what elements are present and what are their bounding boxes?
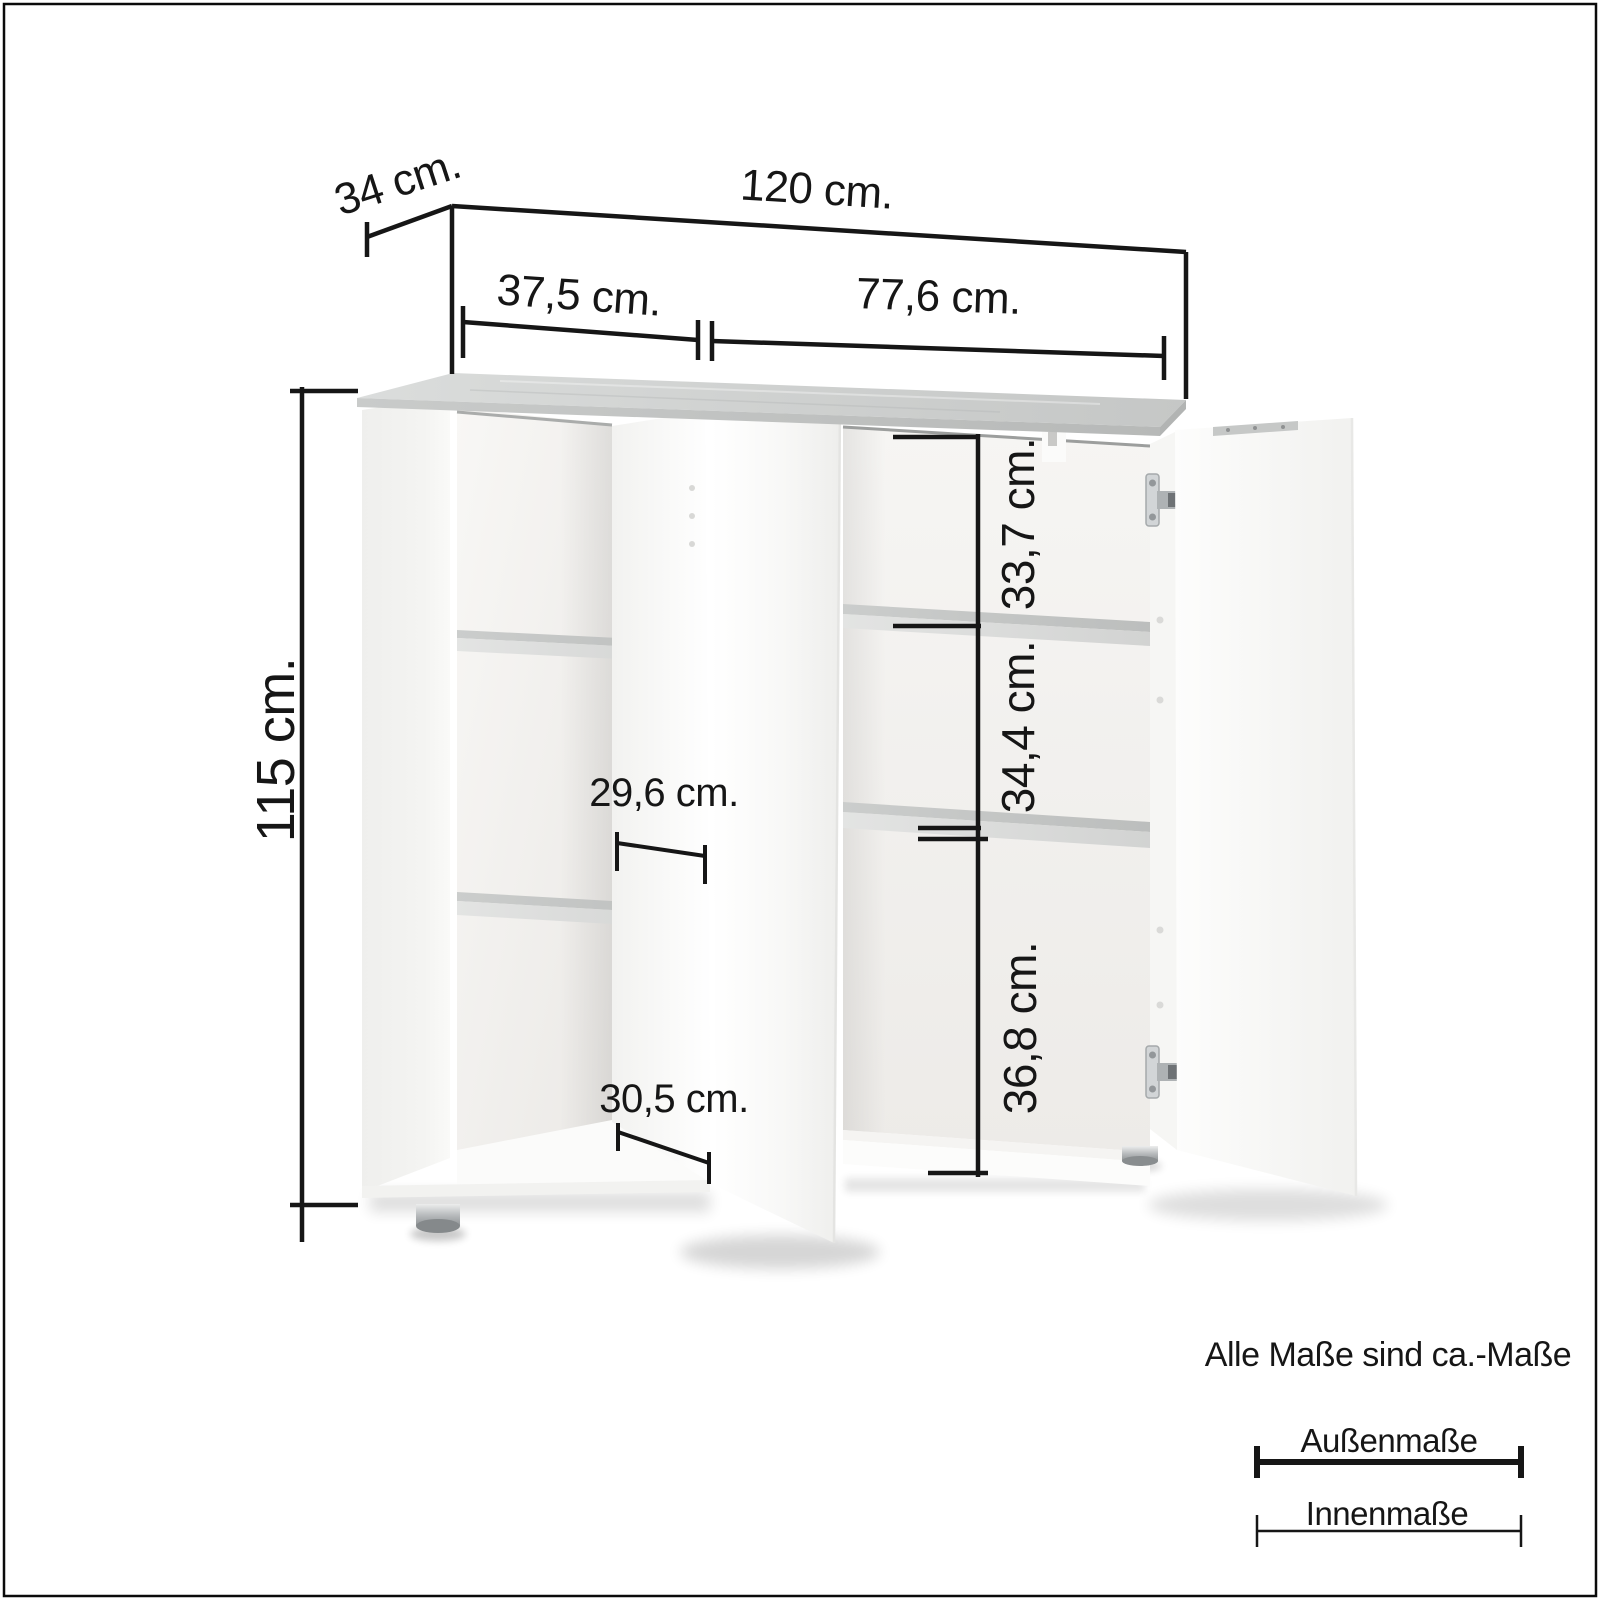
hinge-screw (1149, 480, 1156, 487)
label-right-middle-height: 34,4 cm. (992, 641, 1044, 813)
left-side-panel (362, 397, 450, 1192)
pin-hole (689, 541, 695, 547)
trim-screw (1226, 428, 1230, 432)
hinge-screw (1149, 514, 1156, 521)
right-door (1175, 418, 1356, 1196)
diagram-svg: 34 cm. 120 cm. 37,5 cm. 77,6 cm. 115 cm.… (0, 0, 1600, 1600)
pin-hole (1157, 1002, 1164, 1009)
legend: Alle Maße sind ca.-Maße Außenmaße Innenm… (1205, 1336, 1571, 1547)
label-depth: 34 cm. (329, 139, 467, 225)
shadow-under-middle-door (680, 1235, 880, 1269)
legend-note: Alle Maße sind ca.-Maße (1205, 1336, 1571, 1374)
pin-hole (1157, 927, 1164, 934)
legend-outer-label: Außenmaße (1300, 1422, 1477, 1459)
label-inner-width-lower: 30,5 cm. (599, 1077, 748, 1121)
furniture-dimension-diagram: 34 cm. 120 cm. 37,5 cm. 77,6 cm. 115 cm.… (0, 0, 1600, 1600)
right-door-panel (1175, 418, 1356, 1196)
pin-hole (1157, 697, 1164, 704)
left-width-dim-line (463, 322, 698, 340)
trim-screw (1253, 426, 1257, 430)
label-left-width: 37,5 cm. (495, 265, 663, 325)
foot-base (416, 1219, 460, 1233)
pin-hole (689, 485, 695, 491)
label-right-width: 77,6 cm. (855, 269, 1021, 324)
foot-base (1122, 1156, 1158, 1166)
right-width-dim-line (712, 341, 1164, 356)
cabinet-illustration (357, 373, 1388, 1269)
trim-screw (1281, 425, 1285, 429)
pin-hole (1157, 617, 1164, 624)
left-panel-front-edge (450, 396, 457, 1158)
label-inner-width-upper: 29,6 cm. (589, 771, 738, 815)
right-compartment-left-shade (843, 426, 886, 1134)
hinge-screw (1149, 1052, 1156, 1059)
label-right-top-height: 33,7 cm. (992, 438, 1044, 610)
right-side-panel-inner (1150, 431, 1177, 1150)
hinge-screw (1149, 1086, 1156, 1093)
legend-inner-label: Innenmaße (1306, 1495, 1468, 1532)
label-total-width: 120 cm. (739, 160, 895, 218)
back-panel-joint-notch (1048, 432, 1057, 446)
foot-front-left (416, 1204, 460, 1233)
label-total-height: 115 cm. (246, 658, 306, 843)
label-right-bottom-height: 36,8 cm. (994, 942, 1046, 1114)
pin-hole (689, 513, 695, 519)
foot-back-right (1122, 1146, 1158, 1166)
